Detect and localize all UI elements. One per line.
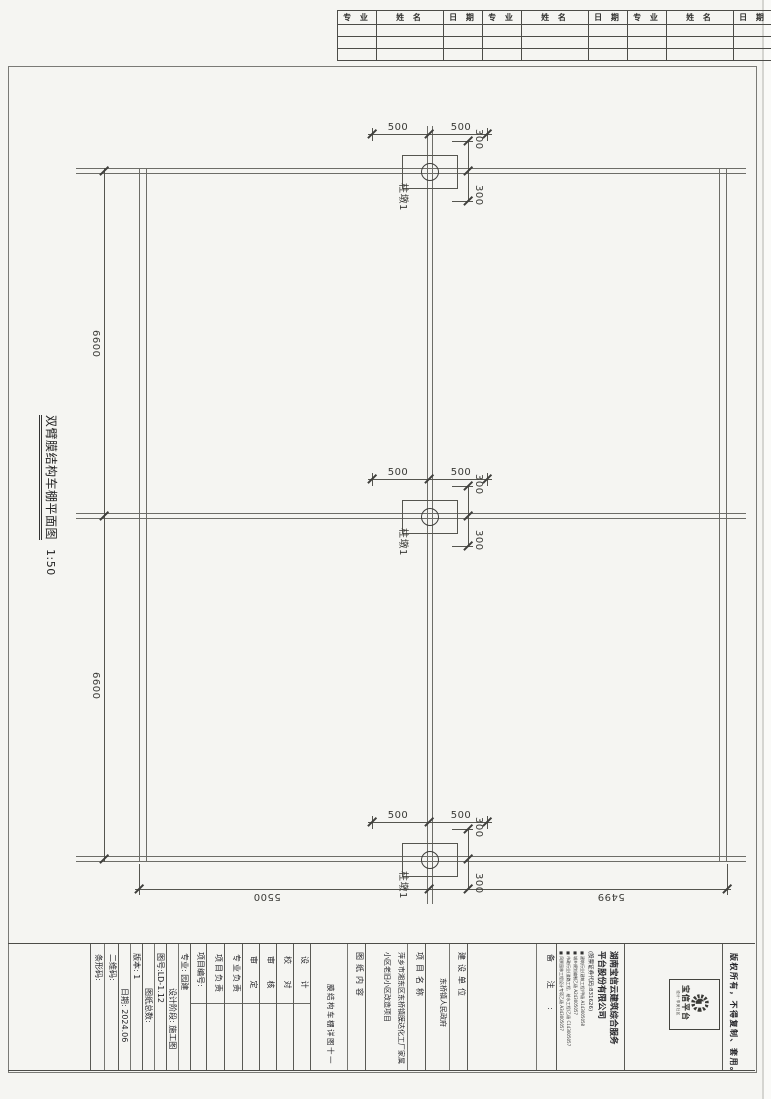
firm-cert-cell: ■ 市政行业(道路工程、给水工程)乙级 C143005057 <box>564 944 571 1070</box>
copyright-cell: 版权所有，不得复制、套用。 <box>722 944 755 1070</box>
version-date-cell: 版本: 1 日期: 2024.06 <box>118 944 142 1070</box>
firm-name-line1: 湖南宝信云建筑综合服务 <box>607 948 618 1045</box>
notes-label-cell: 备 注 : <box>536 944 556 1070</box>
dim-line-bottom <box>135 889 731 890</box>
role-cell: 审 核 <box>259 944 276 1070</box>
firm-cert-cell: ■ 城乡规划编制乙级 A243005057 <box>571 944 578 1070</box>
edge-line-right <box>719 168 720 862</box>
col-discipline: 专 业 <box>483 11 522 25</box>
role-label-cell: 审 核 <box>260 944 276 1070</box>
sheet-total-cell: 图纸总数: <box>143 944 154 1070</box>
firm-stock-code-cell: (股票证券代码:831626) <box>585 944 594 1070</box>
copyright-notice: 版权所有，不得复制、套用。 <box>727 948 739 1077</box>
stage-cell: 设计阶段: 施工图 <box>167 944 178 1070</box>
firm-cert-line: ■ 风景园林工程设计专项乙级 A343005057 <box>559 948 565 1031</box>
notes-label: 备 注 : <box>544 948 556 1018</box>
logo-cell-inner: 宝信平台 设计·享美社区 <box>625 944 722 1070</box>
cell-divider <box>294 1003 310 1004</box>
dim-ext-line <box>727 864 728 895</box>
date-cell: 日期: 2024.06 <box>119 944 130 1070</box>
dim-ext-line <box>452 546 473 547</box>
drawing-sheet: 专 业 姓 名 日 期 专 业 姓 名 日 期 专 业 姓 名 日 期 双臂膜结… <box>0 0 771 1099</box>
company-logo: 宝信平台 设计·享美社区 <box>669 979 720 1030</box>
plan-title: 双臂膜结构车棚平面图1:50 <box>43 415 60 576</box>
content-label: 图纸内容 <box>353 948 365 1000</box>
barcode-label-cell: 条形码: <box>91 944 104 1070</box>
col-date: 日 期 <box>444 11 483 25</box>
cell-divider <box>277 1003 293 1004</box>
dim-ext-line <box>452 201 473 202</box>
discipline: 专业: 园建 <box>178 948 190 990</box>
role-label: 校 对 <box>281 948 293 996</box>
signature-row-empty <box>338 25 771 37</box>
role-label-cell: 校 对 <box>277 944 293 1070</box>
paper-margin <box>764 0 771 1099</box>
owner-label-cell: 建设单位 <box>449 944 467 1070</box>
notes-empty-cell <box>468 944 536 1070</box>
firm-cert-cell: ■ 风景园林工程设计专项乙级 A343005057 <box>557 944 564 1070</box>
dim-ext-line <box>452 486 473 487</box>
role-label-cell: 审 定 <box>243 944 259 1070</box>
dim-300-top: 300 <box>473 474 484 495</box>
barcode-label: 条形码: <box>92 948 104 981</box>
role-label: 审 核 <box>264 948 276 996</box>
role-label-cell: 设 计 <box>294 944 310 1070</box>
dim-300-bottom: 300 <box>473 185 484 206</box>
pier-label: 柱墩1 <box>397 528 412 556</box>
copyright-cell-inner: 版权所有，不得复制、套用。 <box>723 944 755 1070</box>
date-text: 日期: 2024.06 <box>118 948 130 1042</box>
project-no-label-cell: 项目编号: <box>191 944 206 1070</box>
edge-line-left <box>139 168 140 862</box>
pier-label: 柱墩1 <box>397 183 412 211</box>
sheet-content-cell: 图纸内容 膜结构车棚详图十一 <box>310 944 365 1070</box>
firm-cert-line: ■ 建筑行业(建筑工程)甲级 A143005058 <box>580 948 586 1026</box>
firm-cert-line: ■ 市政行业(道路工程、给水工程)乙级 C143005057 <box>566 948 572 1046</box>
sheet-total: 图纸总数: <box>142 948 154 1023</box>
col-date: 日 期 <box>589 11 628 25</box>
sheet-number-cell: 图号:LD-1.12 图纸总数: <box>142 944 166 1070</box>
sheet-no: 图号:LD-1.12 <box>154 948 166 1003</box>
owner-label: 建设单位 <box>455 948 467 1000</box>
dim-bay-upper: 6600 <box>90 330 101 357</box>
firm-name-line2-cell: 平台股份有限公司 <box>594 944 606 1070</box>
dim-500-left: 500 <box>378 122 418 133</box>
pier-column-circle <box>421 851 439 869</box>
owner-cell: 建设单位 东桥镇人民政府 <box>425 944 467 1070</box>
project-name-line2: 小区老旧小区改造项目 <box>380 948 393 1022</box>
code-labels-cell: 二维码: 条形码: <box>90 944 118 1070</box>
cell-divider <box>225 1003 242 1004</box>
version-text: 版本: 1 <box>130 948 142 979</box>
sheet-no-cell: 图号:LD-1.12 <box>154 944 166 1070</box>
dim-300-top: 300 <box>473 129 484 150</box>
dim-ext-line <box>452 141 473 142</box>
role-cell: 专业负责 <box>224 944 242 1070</box>
cell-divider <box>207 1003 224 1004</box>
col-name: 姓 名 <box>667 11 734 25</box>
content-value-cell: 膜结构车棚详图十一 <box>311 944 347 1070</box>
firm-cert-cell: ■ 建筑行业(建筑工程)甲级 A143005058 <box>578 944 585 1070</box>
dim-500-left: 500 <box>378 810 418 821</box>
cell-divider <box>260 1003 276 1004</box>
owner-value: 东桥镇人民政府 <box>437 948 449 1027</box>
project-no-cell: 项目编号: <box>190 944 206 1070</box>
logo-name: 宝信平台 <box>681 985 689 1021</box>
project-no-label: 项目编号: <box>194 948 206 987</box>
dim-bottom-right: 5499 <box>590 891 632 902</box>
firm-name-line2: 平台股份有限公司 <box>595 948 606 1019</box>
signature-row-empty <box>338 37 771 49</box>
role-label-cell: 专业负责 <box>225 944 242 1070</box>
dim-ext-line <box>139 864 140 895</box>
logo-cell: 宝信平台 设计·享美社区 <box>624 944 722 1070</box>
cell-divider <box>191 1003 206 1004</box>
dim-300-bottom: 300 <box>473 530 484 551</box>
col-discipline: 专 业 <box>338 11 377 25</box>
edge-line-right <box>726 168 727 862</box>
col-date: 日 期 <box>734 11 771 25</box>
project-value-cell: 萍乡市湘东区东桥镇膜达化工厂家属 小区老旧小区改造项目 <box>366 944 407 1070</box>
dim-300-top: 300 <box>473 817 484 838</box>
edge-line-left <box>146 168 147 862</box>
logo-tagline: 设计·享美社区 <box>676 990 680 1016</box>
qr-area-cell <box>8 944 90 1070</box>
role-label: 项目负责 <box>212 948 224 994</box>
design-firm-cell: 湖南宝信云建筑综合服务 平台股份有限公司 (股票证券代码:831626) ■ 建… <box>556 944 624 1070</box>
firm-stock-code: (股票证券代码:831626) <box>586 948 594 1011</box>
role-cell: 审 定 <box>242 944 259 1070</box>
discipline-stage-cell: 专业: 园建 设计阶段: 施工图 <box>166 944 190 1070</box>
project-name-cell: 项目名称 萍乡市湘东区东桥镇膜达化工厂家属 小区老旧小区改造项目 <box>365 944 425 1070</box>
dim-300-bottom: 300 <box>473 873 484 894</box>
plan-title-text: 双臂膜结构车棚平面图 <box>39 415 58 540</box>
gear-logo-icon <box>690 993 710 1013</box>
project-label: 项目名称 <box>413 948 425 1000</box>
col-name: 姓 名 <box>522 11 589 25</box>
pier-label: 柱墩1 <box>397 871 412 899</box>
cell-divider <box>243 1003 259 1004</box>
role-label: 专业负责 <box>230 948 242 994</box>
project-label-cell: 项目名称 <box>407 944 425 1070</box>
paper-edge <box>762 0 764 1099</box>
role-cell: 校 对 <box>276 944 293 1070</box>
firm-cert-line: ■ 城乡规划编制乙级 A243005057 <box>573 948 579 1015</box>
col-discipline: 专 业 <box>628 11 667 25</box>
col-name: 姓 名 <box>377 11 444 25</box>
role-cell: 项目负责 <box>206 944 224 1070</box>
notes-cell: 备 注 : <box>467 944 556 1070</box>
title-block: 二维码: 条形码: 版本: 1 日期: 2024.06 图号:LD-1.12 图… <box>8 943 755 1071</box>
dim-bottom-left: 5500 <box>246 891 288 902</box>
project-name-line1: 萍乡市湘东区东桥镇膜达化工厂家属 <box>394 948 407 1064</box>
role-label: 设 计 <box>298 948 310 996</box>
qr-label-cell: 二维码: <box>104 944 118 1070</box>
content-label-cell: 图纸内容 <box>347 944 365 1070</box>
signature-row-empty <box>338 49 771 61</box>
pier-column-circle <box>421 508 439 526</box>
signature-table-header: 专 业 姓 名 日 期 专 业 姓 名 日 期 专 业 姓 名 日 期 <box>338 11 771 25</box>
plan-scale: 1:50 <box>44 549 57 576</box>
company-logo-content: 宝信平台 设计·享美社区 <box>670 980 716 1026</box>
dim-500-left: 500 <box>378 467 418 478</box>
stage: 设计阶段: 施工图 <box>166 948 178 1049</box>
role-cell: 设 计 <box>293 944 310 1070</box>
signature-table: 专 业 姓 名 日 期 专 业 姓 名 日 期 专 业 姓 名 日 期 <box>337 10 771 61</box>
discipline-cell: 专业: 园建 <box>178 944 190 1070</box>
role-label: 审 定 <box>247 948 259 996</box>
dim-bay-lower: 6600 <box>90 672 101 699</box>
version-cell: 版本: 1 <box>130 944 142 1070</box>
dim-ext-line <box>452 829 473 830</box>
content-value: 膜结构车棚详图十一 <box>324 948 336 1065</box>
owner-value-cell: 东桥镇人民政府 <box>426 944 449 1070</box>
firm-name-line1-cell: 湖南宝信云建筑综合服务 <box>606 944 618 1070</box>
pier-column-circle <box>421 163 439 181</box>
qr-label: 二维码: <box>106 948 118 981</box>
sheet-border <box>8 66 757 1073</box>
role-label-cell: 项目负责 <box>207 944 224 1070</box>
